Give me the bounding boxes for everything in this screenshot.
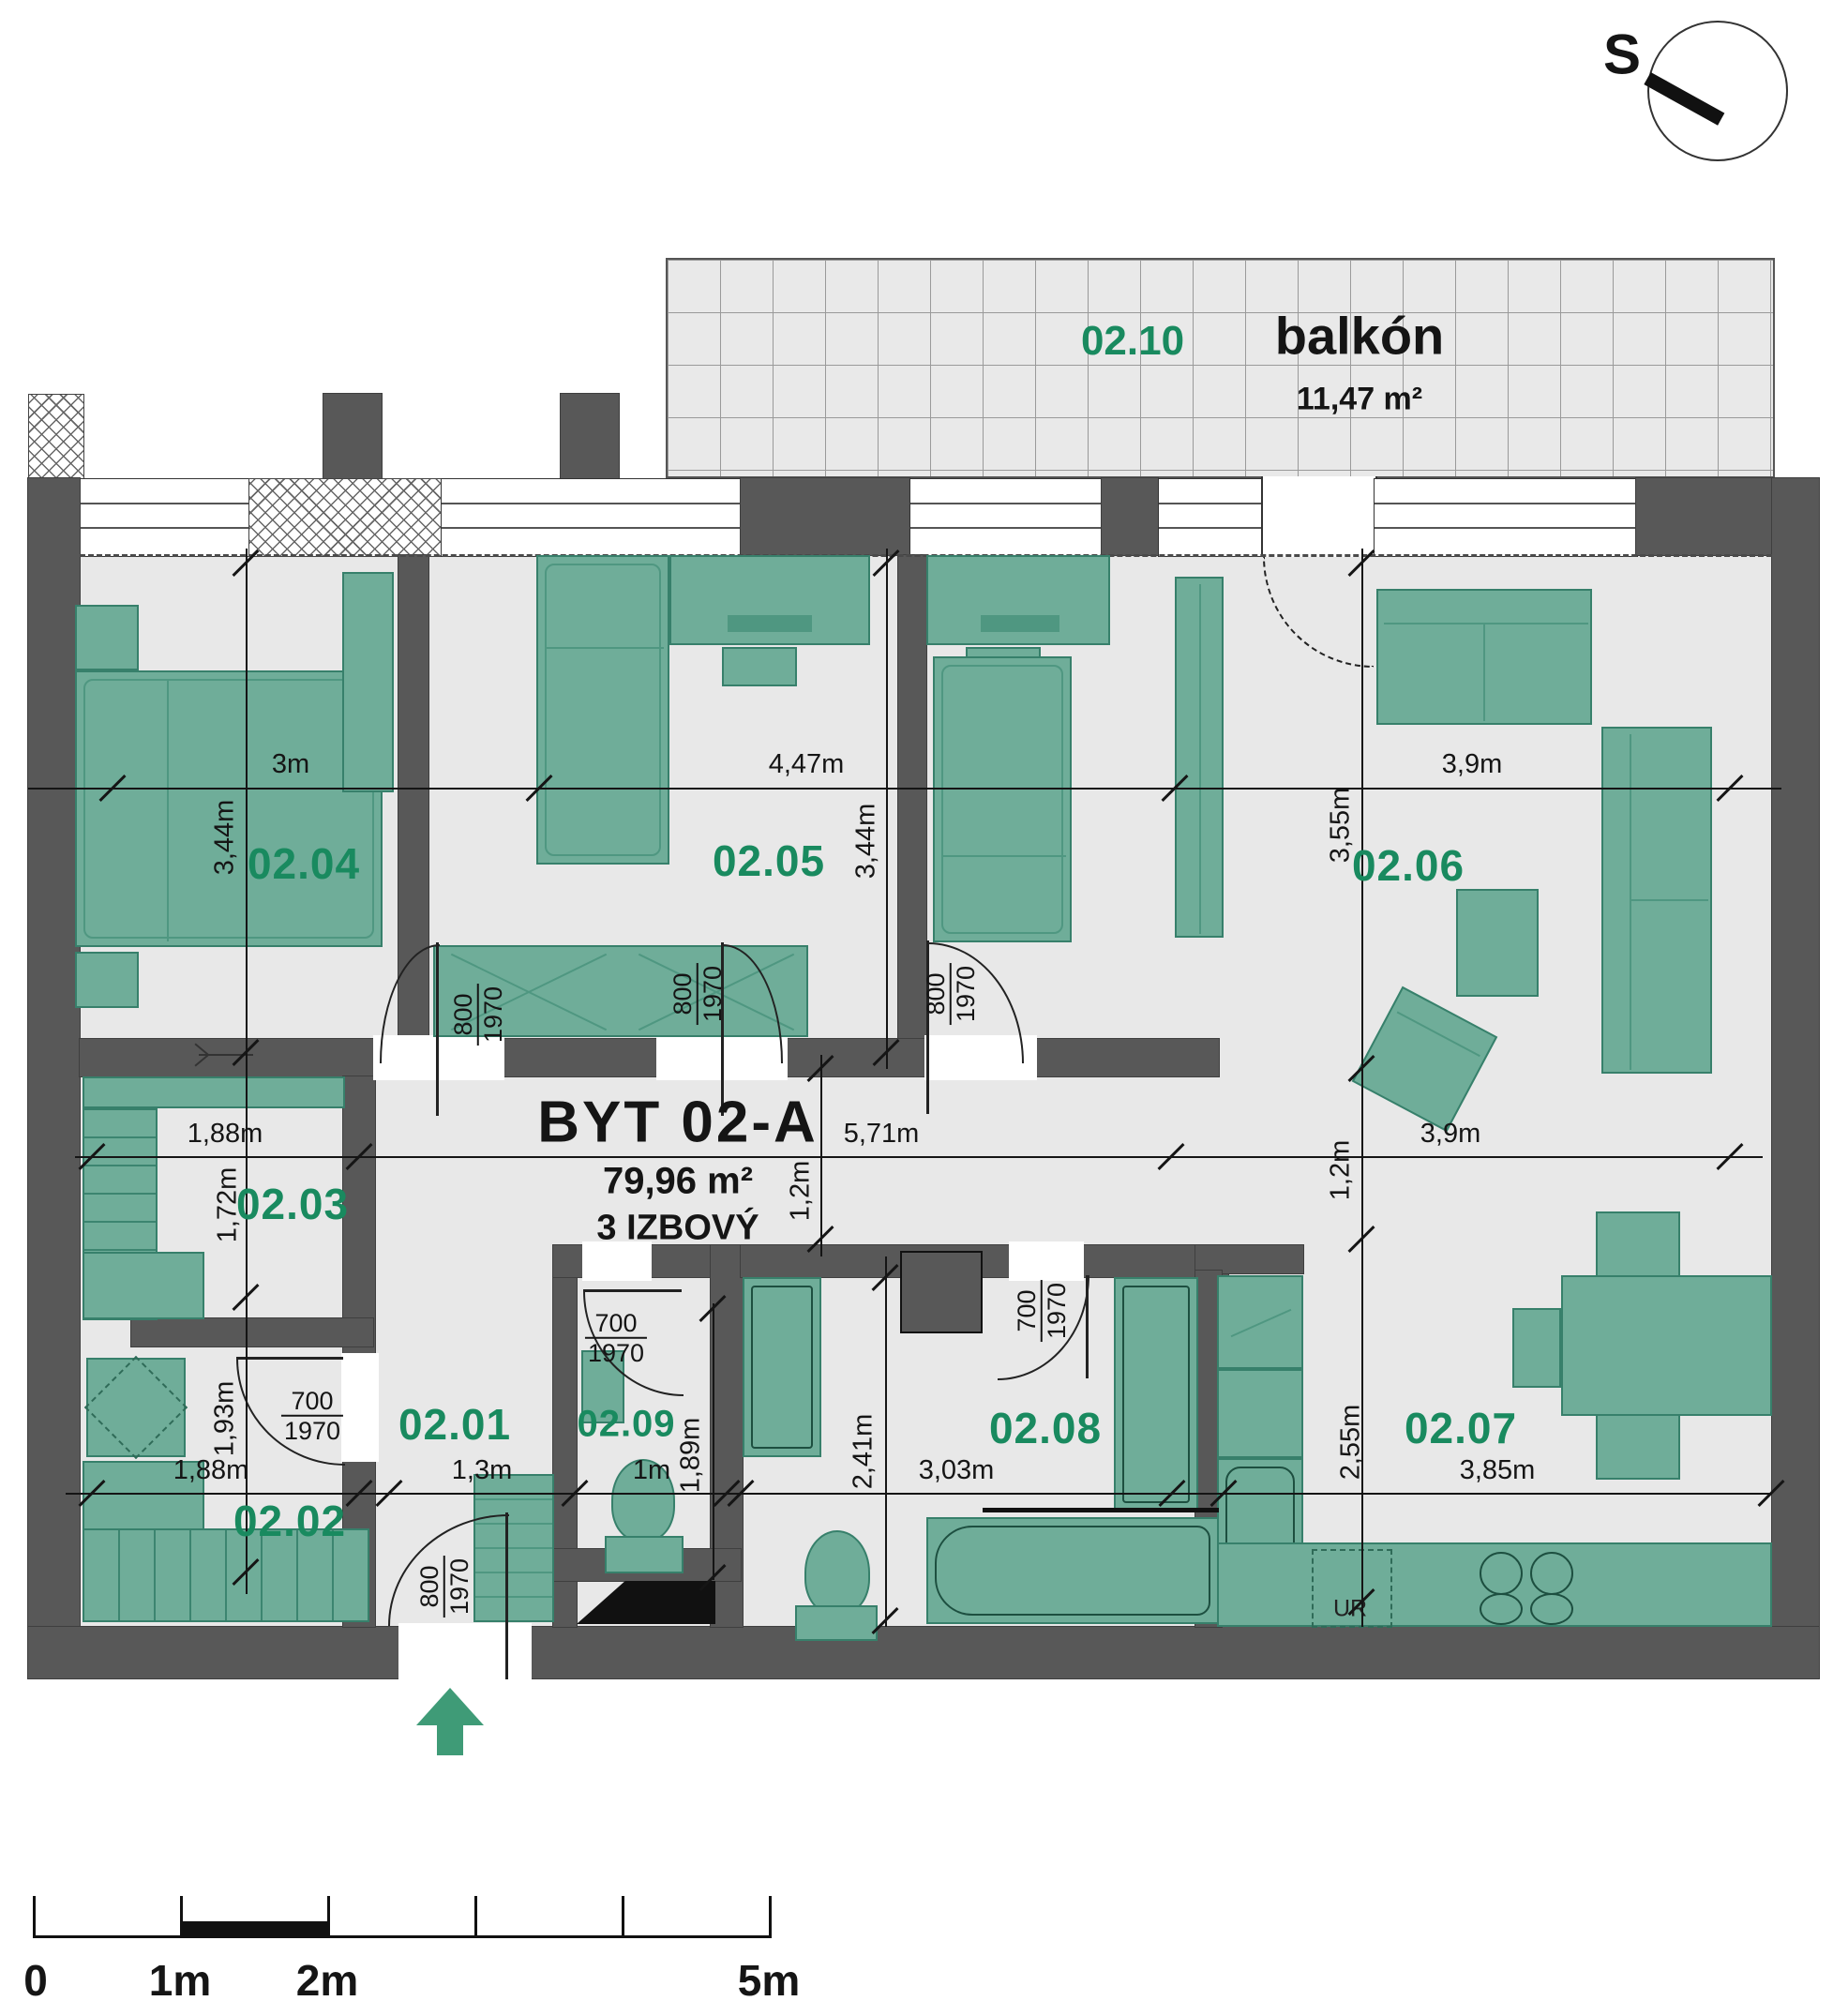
wall bbox=[1102, 478, 1158, 555]
dim-label: 3m bbox=[272, 749, 309, 780]
dim-line bbox=[886, 549, 888, 1069]
door-height: 1970 bbox=[585, 1337, 647, 1367]
shower-screen bbox=[983, 1508, 1219, 1512]
door-height: 1970 bbox=[950, 963, 980, 1025]
door-height: 1970 bbox=[477, 984, 507, 1046]
shelf bbox=[83, 1252, 204, 1319]
dim-line bbox=[66, 1493, 1771, 1495]
room-label-0204: 02.04 bbox=[248, 838, 360, 889]
door-width: 800 bbox=[449, 990, 477, 1038]
nightstand bbox=[75, 952, 139, 1008]
door-size-label: 8001970 bbox=[415, 1556, 473, 1617]
entrance-arrow-icon bbox=[437, 1725, 463, 1755]
dim-line bbox=[713, 1303, 714, 1580]
dim-line bbox=[820, 1055, 822, 1256]
room-label-0203: 02.03 bbox=[236, 1179, 349, 1229]
door-width: 800 bbox=[415, 1562, 443, 1610]
door-leaf bbox=[583, 1289, 682, 1292]
dim-label: 1,93m bbox=[210, 1381, 241, 1457]
dim-label: 2,41m bbox=[849, 1414, 879, 1490]
neighbor-wall bbox=[323, 394, 382, 480]
fridge bbox=[1217, 1275, 1303, 1369]
door-width: 700 bbox=[592, 1309, 639, 1337]
nightstand bbox=[75, 605, 139, 670]
door-size-label: 7001970 bbox=[281, 1387, 343, 1445]
apartment-area: 79,96 m² bbox=[603, 1161, 753, 1203]
bed bbox=[933, 656, 1072, 942]
entrance-door-opening bbox=[398, 1623, 532, 1681]
balcony-number: 02.10 bbox=[1081, 318, 1184, 365]
dining-table bbox=[1561, 1275, 1772, 1416]
shaft bbox=[902, 1253, 981, 1331]
window bbox=[80, 478, 250, 557]
dim-line bbox=[885, 1256, 887, 1627]
wall bbox=[741, 478, 909, 555]
door-leaf bbox=[505, 1512, 508, 1679]
room-label-0208: 02.08 bbox=[989, 1403, 1102, 1453]
balcony-name: balkón bbox=[1275, 306, 1444, 367]
door-size-label: 7001970 bbox=[585, 1309, 647, 1367]
sofa bbox=[1601, 727, 1712, 1074]
door-opening bbox=[341, 1353, 379, 1462]
window bbox=[1374, 478, 1638, 557]
door-height: 1970 bbox=[281, 1415, 343, 1445]
room-label-0201: 02.01 bbox=[398, 1399, 511, 1450]
wardrobe bbox=[342, 572, 394, 792]
door-height: 1970 bbox=[697, 963, 727, 1025]
scale-label-0: 0 bbox=[23, 1955, 48, 2006]
dim-line bbox=[75, 1156, 1763, 1158]
sofa bbox=[1376, 589, 1592, 725]
desk bbox=[926, 555, 1110, 645]
balcony bbox=[666, 258, 1775, 478]
dim-label: 5,71m bbox=[844, 1119, 920, 1150]
door-width: 800 bbox=[669, 970, 697, 1017]
scale-tick bbox=[180, 1896, 183, 1937]
door-height: 1970 bbox=[443, 1556, 473, 1617]
chair bbox=[722, 647, 797, 686]
scale-tick bbox=[327, 1896, 330, 1937]
toilet bbox=[804, 1530, 870, 1615]
dim-label: 2,55m bbox=[1336, 1405, 1367, 1481]
wall-bottom bbox=[28, 1627, 1819, 1678]
desk bbox=[669, 555, 870, 645]
dim-label: 1,2m bbox=[786, 1161, 817, 1221]
scale-label-5m: 5m bbox=[738, 1955, 800, 2006]
wall-right bbox=[1772, 478, 1819, 1678]
wall bbox=[553, 1245, 586, 1277]
door-height: 1970 bbox=[1041, 1280, 1071, 1342]
toilet-tank bbox=[795, 1605, 878, 1641]
door-width: 700 bbox=[1013, 1286, 1041, 1334]
door-size-label: 8001970 bbox=[449, 984, 507, 1046]
scale-bar-segment bbox=[180, 1921, 328, 1936]
dim-label: 3,03m bbox=[919, 1455, 995, 1486]
dim-label: 1,3m bbox=[452, 1455, 512, 1486]
door-size-label: 8001970 bbox=[922, 963, 980, 1025]
wall-left bbox=[28, 478, 80, 1678]
door-leaf bbox=[1086, 1275, 1089, 1378]
dim-label: 3,9m bbox=[1442, 749, 1502, 780]
wall bbox=[131, 1318, 373, 1347]
exterior-wall-hatch bbox=[28, 394, 84, 482]
scale-bar bbox=[33, 1935, 772, 1938]
apartment-title: BYT 02-A bbox=[537, 1090, 819, 1156]
door-leaf bbox=[436, 942, 439, 1116]
vanity-sink bbox=[1114, 1277, 1198, 1512]
door-size-label: 8001970 bbox=[669, 963, 727, 1025]
room-label-0209: 02.09 bbox=[577, 1404, 675, 1446]
apartment-type: 3 IZBOVÝ bbox=[596, 1209, 759, 1249]
dim-line bbox=[28, 788, 1781, 790]
window bbox=[1158, 478, 1263, 557]
door-width: 800 bbox=[922, 970, 950, 1017]
dining-chair bbox=[1596, 1414, 1680, 1480]
coffee-table bbox=[1456, 889, 1539, 997]
balcony-area: 11,47 m² bbox=[1297, 382, 1422, 418]
wall bbox=[80, 1039, 373, 1076]
wall bbox=[1195, 1245, 1303, 1273]
dim-label: 1m bbox=[633, 1455, 670, 1486]
door-leaf bbox=[236, 1357, 343, 1360]
wall bbox=[788, 1039, 926, 1076]
wardrobe bbox=[1175, 577, 1224, 938]
compass-label: S bbox=[1603, 23, 1641, 87]
window bbox=[909, 478, 1104, 557]
dim-label: 4,47m bbox=[769, 749, 845, 780]
dim-label: 3,85m bbox=[1460, 1455, 1536, 1486]
bed bbox=[536, 555, 669, 865]
door-width: 700 bbox=[288, 1387, 336, 1415]
closet-rod bbox=[83, 1076, 345, 1108]
scale-label-1m: 1m bbox=[149, 1955, 211, 2006]
wall bbox=[1036, 1039, 1219, 1076]
scale-label-2m: 2m bbox=[296, 1955, 358, 2006]
toilet-tank bbox=[605, 1536, 684, 1573]
scale-tick bbox=[474, 1896, 477, 1937]
door-size-label: 7001970 bbox=[1013, 1280, 1071, 1342]
bathtub bbox=[926, 1517, 1219, 1624]
scale-tick bbox=[769, 1896, 772, 1937]
room-label-0206: 02.06 bbox=[1352, 840, 1465, 891]
dining-chair bbox=[1596, 1211, 1680, 1277]
dim-label: 1,88m bbox=[188, 1119, 263, 1150]
floor-plan: S 02.10 balkón 11,47 m² bbox=[0, 0, 1848, 2016]
room-label-0202: 02.02 bbox=[233, 1496, 346, 1546]
dim-label: 3,44m bbox=[210, 800, 241, 876]
window bbox=[441, 478, 743, 557]
dim-label: 1,88m bbox=[173, 1455, 249, 1486]
dim-line bbox=[246, 549, 248, 1594]
dining-chair bbox=[1512, 1308, 1561, 1388]
washing-machine bbox=[86, 1358, 186, 1457]
neighbor-wall bbox=[561, 394, 619, 480]
dim-label: 3,44m bbox=[851, 804, 882, 880]
kitchen-counter bbox=[1217, 1542, 1772, 1627]
entrance-arrow-icon bbox=[416, 1688, 484, 1725]
balcony-door-opening bbox=[1261, 476, 1377, 557]
room-label-0207: 02.07 bbox=[1405, 1403, 1517, 1453]
dim-label: 1,2m bbox=[1326, 1140, 1357, 1200]
dim-label: 3,9m bbox=[1420, 1119, 1480, 1150]
scale-tick bbox=[622, 1896, 624, 1937]
room-label-0205: 02.05 bbox=[713, 835, 825, 886]
exterior-wall-hatch bbox=[248, 478, 443, 557]
wall bbox=[504, 1039, 656, 1076]
scale-tick bbox=[33, 1896, 36, 1937]
vanity-sink bbox=[743, 1277, 821, 1457]
dim-label: 1,89m bbox=[676, 1418, 707, 1494]
kitchen-cabinet bbox=[1217, 1369, 1303, 1458]
